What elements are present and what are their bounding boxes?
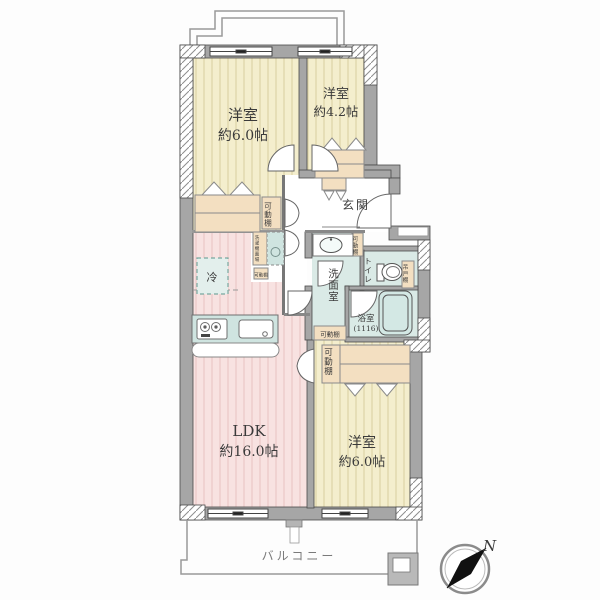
bedroom-right-size: 約6.0帖 <box>339 455 386 470</box>
window-bottom-bedroom <box>322 509 368 518</box>
window-top-right <box>298 47 352 56</box>
bathroom-name: 浴室 <box>357 313 375 324</box>
toilet-icon <box>377 264 402 282</box>
balcony-partition-plate <box>290 527 299 543</box>
bathtub-icon <box>379 291 412 335</box>
bedroom-top-left-name: 洋室 <box>228 106 258 124</box>
balcony-corner-structure <box>388 553 418 585</box>
stove-icon <box>197 319 227 339</box>
wash-basin <box>313 234 353 256</box>
compass-north-label: N <box>482 537 497 555</box>
window-top-left <box>210 47 272 56</box>
ldk-size: 約16.0帖 <box>219 444 278 460</box>
bathroom-size: (1116) <box>354 324 379 333</box>
movable-shelf-label-1: 可動棚 <box>263 202 272 228</box>
bedroom-top-left-size: 約6.0帖 <box>218 128 268 144</box>
entrance-step <box>398 227 428 236</box>
movable-shelf-label-4: 可動棚 <box>323 348 333 377</box>
balcony-partition <box>286 520 302 527</box>
floor-plan: N 洋室 約6.0帖 洋室 約4.2帖 洋室 約6.0帖 LDK 約16.0帖 … <box>0 0 600 600</box>
movable-shelf-label-2: 可動棚 <box>352 236 359 256</box>
bedroom-top-right-name: 洋室 <box>323 86 349 102</box>
refrigerator-label: 冷 <box>207 271 218 284</box>
movable-shelf-label-5: 可動棚 <box>254 272 268 279</box>
upper-slab-outline <box>190 11 344 46</box>
bedroom-top-right-size: 約4.2帖 <box>314 104 359 119</box>
bedroom-right-name: 洋室 <box>348 434 376 451</box>
balcony-label: バルコニー <box>262 549 337 563</box>
entrance-label: 玄関 <box>342 197 370 212</box>
movable-shelf-label-3: 可動棚 <box>320 330 340 339</box>
floorplan-page: N 洋室 約6.0帖 洋室 約4.2帖 洋室 約6.0帖 LDK 約16.0帖 … <box>0 0 600 600</box>
sink-icon <box>239 320 273 338</box>
hanging-cupboard-label: 吊戸棚 <box>402 264 409 284</box>
toilet-label: トイレ <box>364 257 373 284</box>
washroom-label: 洗面室 <box>327 268 339 303</box>
compass: N <box>441 537 497 593</box>
washing-machine-label: 洗濯機置場 <box>254 234 259 263</box>
ldk-name: LDK <box>232 422 266 440</box>
kitchen-lower-counter <box>192 343 279 357</box>
window-bottom-ldk <box>208 509 268 518</box>
